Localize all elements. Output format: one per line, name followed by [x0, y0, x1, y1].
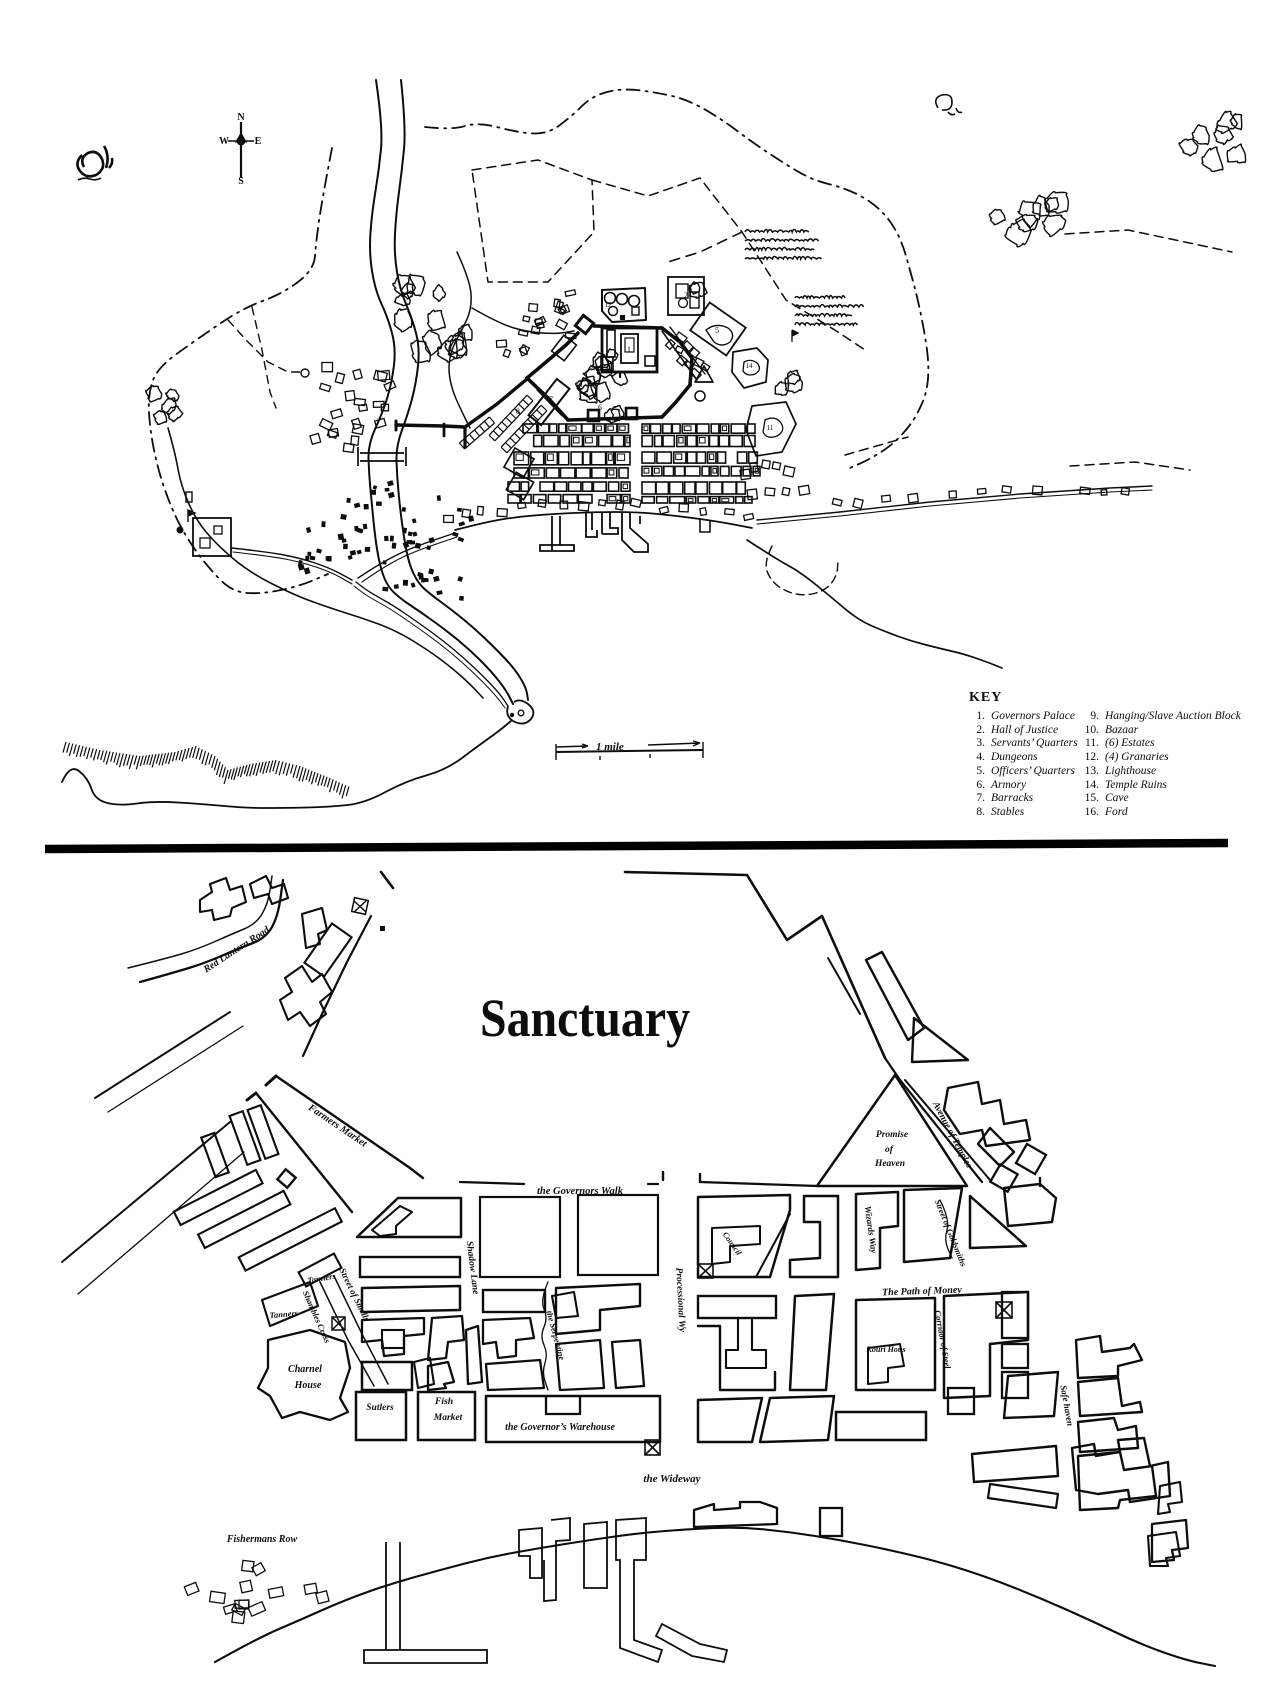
svg-text:2: 2 — [684, 291, 688, 300]
svg-text:Temple Ruins: Temple Ruins — [1105, 779, 1167, 791]
svg-text:11: 11 — [767, 424, 774, 432]
svg-text:8.: 8. — [976, 806, 985, 818]
svg-text:Cave: Cave — [1105, 792, 1129, 804]
svg-text:1: 1 — [627, 345, 631, 354]
svg-text:Heaven: Heaven — [874, 1159, 905, 1169]
svg-text:House: House — [294, 1380, 322, 1391]
svg-text:of: of — [885, 1145, 894, 1155]
svg-text:7.: 7. — [976, 792, 985, 804]
svg-text:the Wideway: the Wideway — [643, 1473, 700, 1485]
svg-text:5.: 5. — [976, 765, 985, 777]
svg-text:10.: 10. — [1085, 724, 1100, 736]
svg-text:6.: 6. — [976, 779, 985, 791]
svg-text:E: E — [255, 136, 262, 147]
svg-text:N: N — [237, 112, 245, 123]
svg-text:KEY: KEY — [969, 690, 1002, 705]
svg-text:6: 6 — [598, 403, 602, 412]
svg-text:7: 7 — [549, 395, 553, 404]
svg-text:(6) Estates: (6) Estates — [1105, 737, 1155, 749]
svg-text:Bazaar: Bazaar — [1105, 724, 1139, 736]
svg-text:Governors Palace: Governors Palace — [991, 710, 1075, 722]
svg-text:8: 8 — [516, 407, 520, 416]
svg-text:12.: 12. — [1085, 751, 1100, 763]
svg-text:Armory: Armory — [990, 779, 1027, 791]
svg-text:W: W — [219, 136, 229, 147]
svg-text:3.: 3. — [976, 737, 985, 749]
svg-text:Ford: Ford — [1104, 806, 1128, 818]
svg-text:Barracks: Barracks — [991, 792, 1034, 804]
svg-text:Sanctuary: Sanctuary — [480, 988, 690, 1048]
svg-text:Promise: Promise — [876, 1130, 909, 1140]
svg-text:the Governors Walk: the Governors Walk — [537, 1186, 624, 1197]
svg-text:Stables: Stables — [991, 806, 1025, 818]
svg-text:Fishermans Row: Fishermans Row — [226, 1534, 298, 1545]
svg-text:16.: 16. — [1085, 806, 1100, 818]
svg-text:Hanging/Slave Auction Block: Hanging/Slave Auction Block — [1104, 710, 1242, 722]
svg-text:Officers’ Quarters: Officers’ Quarters — [991, 765, 1076, 777]
svg-text:Kourt Hous: Kourt Hous — [866, 1345, 906, 1354]
svg-text:11.: 11. — [1085, 737, 1099, 749]
svg-text:Servants’ Quarters: Servants’ Quarters — [991, 737, 1078, 749]
svg-text:13.: 13. — [1085, 765, 1100, 777]
svg-text:Charnel: Charnel — [288, 1364, 322, 1375]
svg-text:12: 12 — [605, 301, 613, 309]
svg-text:Hall of Justice: Hall of Justice — [990, 724, 1058, 736]
svg-text:Sutlers: Sutlers — [366, 1403, 394, 1413]
svg-text:(4) Granaries: (4) Granaries — [1105, 751, 1169, 763]
svg-text:9.: 9. — [1090, 710, 1099, 722]
svg-text:14.: 14. — [1085, 779, 1100, 791]
svg-text:2.: 2. — [976, 724, 985, 736]
svg-text:4.: 4. — [976, 751, 985, 763]
svg-text:14: 14 — [746, 362, 754, 370]
svg-text:Lighthouse: Lighthouse — [1104, 765, 1156, 777]
svg-text:Fish: Fish — [434, 1397, 453, 1407]
svg-text:S: S — [238, 176, 244, 187]
svg-text:Dungeons: Dungeons — [990, 751, 1038, 763]
svg-text:1 mile: 1 mile — [596, 741, 624, 753]
svg-text:1.: 1. — [976, 710, 985, 722]
svg-text:Market: Market — [433, 1413, 463, 1423]
svg-text:the Governor’s Warehouse: the Governor’s Warehouse — [505, 1422, 615, 1433]
svg-text:15.: 15. — [1085, 792, 1100, 804]
svg-text:5: 5 — [715, 326, 719, 335]
